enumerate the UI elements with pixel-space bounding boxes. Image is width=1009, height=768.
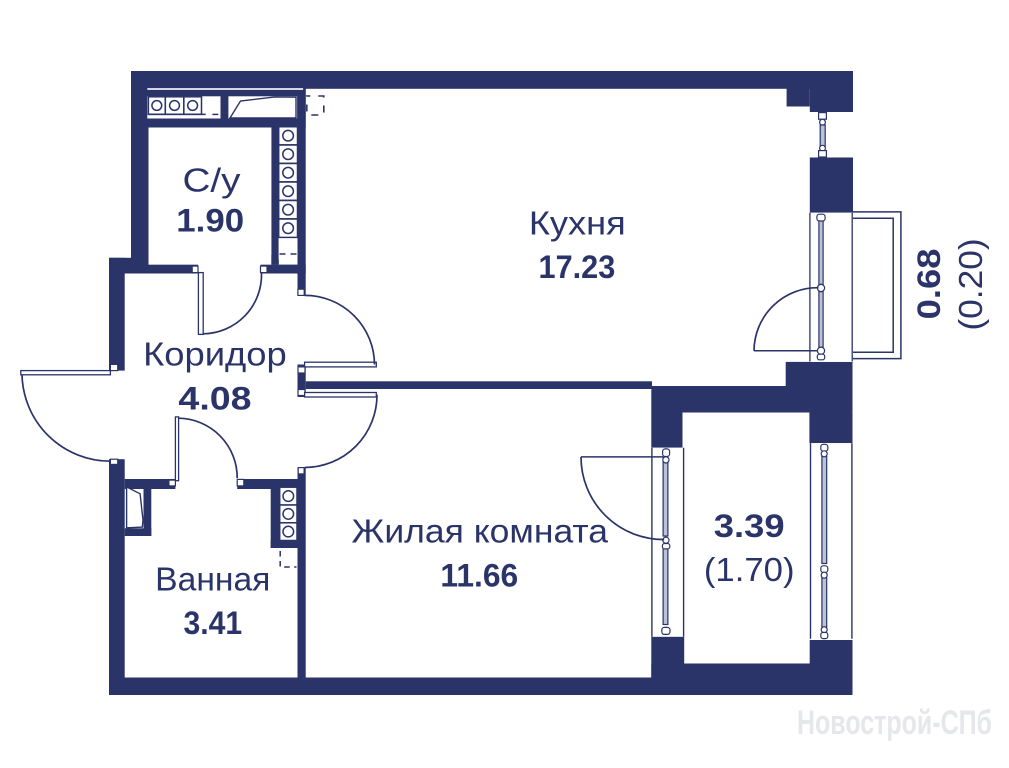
svg-text:С/у: С/у xyxy=(183,162,242,199)
svg-text:0.68: 0.68 xyxy=(911,249,947,320)
svg-text:Новострой-СПб: Новострой-СПб xyxy=(797,704,992,742)
svg-text:3.41: 3.41 xyxy=(183,605,242,641)
svg-text:3.39: 3.39 xyxy=(714,508,785,544)
svg-text:11.66: 11.66 xyxy=(440,558,518,594)
svg-text:(1.70): (1.70) xyxy=(704,551,795,588)
svg-text:1.90: 1.90 xyxy=(176,203,244,239)
svg-text:Коридор: Коридор xyxy=(143,336,287,373)
svg-text:17.23: 17.23 xyxy=(539,249,616,285)
svg-text:Ванная: Ванная xyxy=(155,561,270,598)
svg-text:4.08: 4.08 xyxy=(178,381,251,417)
svg-text:Кухня: Кухня xyxy=(529,205,626,242)
svg-text:Жилая комната: Жилая комната xyxy=(352,513,609,550)
svg-text:(0.20): (0.20) xyxy=(952,238,989,330)
